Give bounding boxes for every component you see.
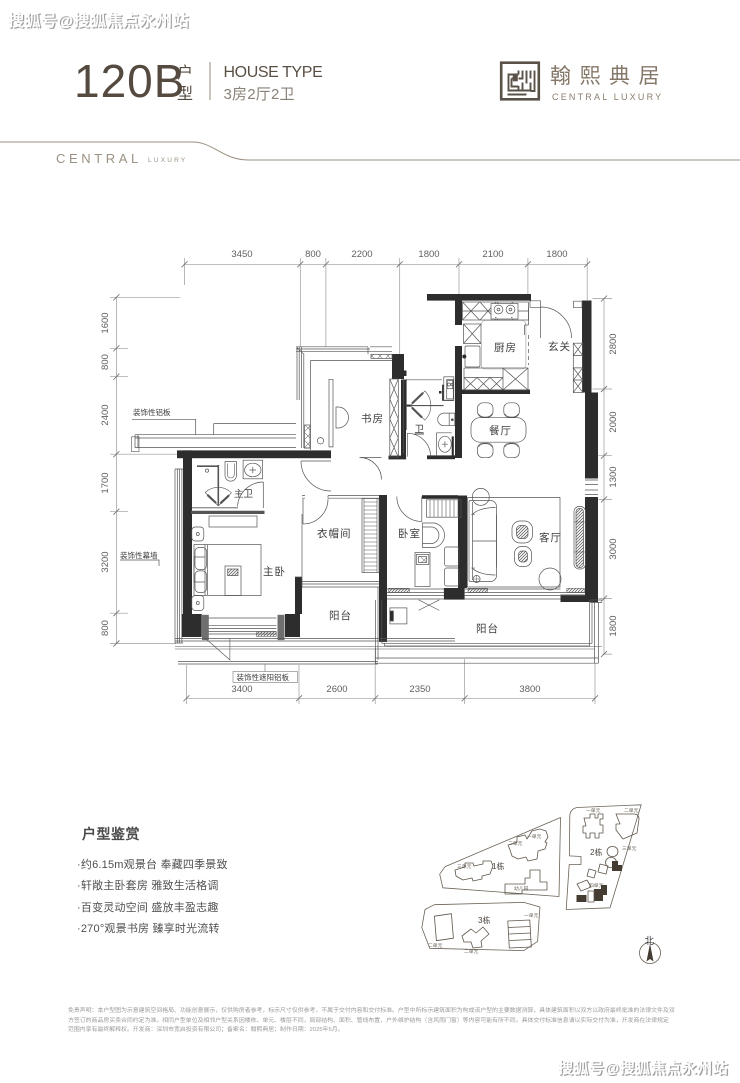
svg-text:3800: 3800 bbox=[519, 684, 540, 695]
svg-text:二单元: 二单元 bbox=[508, 840, 523, 847]
svg-text:型: 型 bbox=[177, 85, 193, 103]
svg-text:二单元: 二单元 bbox=[464, 948, 479, 955]
svg-text:装饰性幕墙: 装饰性幕墙 bbox=[120, 550, 158, 560]
svg-text:2400: 2400 bbox=[100, 404, 111, 425]
svg-text:幼儿园: 幼儿园 bbox=[514, 885, 529, 892]
svg-text:二单元: 二单元 bbox=[624, 807, 639, 814]
svg-text:玄关: 玄关 bbox=[548, 340, 571, 353]
svg-text:CENTRAL LUXURY: CENTRAL LUXURY bbox=[552, 92, 663, 102]
svg-text:1800: 1800 bbox=[418, 249, 439, 260]
svg-text:一单元: 一单元 bbox=[524, 912, 539, 919]
svg-text:2600: 2600 bbox=[326, 684, 347, 695]
svg-text:2800: 2800 bbox=[608, 333, 619, 354]
svg-text:厨房: 厨房 bbox=[494, 341, 517, 354]
svg-text:3400: 3400 bbox=[231, 684, 252, 695]
svg-text:客厅: 客厅 bbox=[539, 531, 562, 544]
svg-text:衣帽间: 衣帽间 bbox=[317, 527, 352, 540]
svg-text:1600: 1600 bbox=[100, 312, 111, 333]
svg-text:户: 户 bbox=[177, 64, 193, 82]
svg-text:阳台: 阳台 bbox=[476, 622, 499, 635]
svg-text:CENTRAL: CENTRAL bbox=[56, 151, 142, 166]
svg-text:1700: 1700 bbox=[100, 472, 111, 493]
svg-text:主卫: 主卫 bbox=[234, 488, 254, 500]
svg-text:3450: 3450 bbox=[231, 249, 252, 260]
svg-text:1800: 1800 bbox=[608, 615, 619, 636]
svg-text:1栋: 1栋 bbox=[492, 861, 504, 871]
svg-text:2栋: 2栋 bbox=[590, 847, 602, 857]
svg-text:3房2厅2卫: 3房2厅2卫 bbox=[224, 86, 295, 103]
svg-text:主卧: 主卧 bbox=[263, 565, 286, 578]
svg-text:2000: 2000 bbox=[608, 411, 619, 432]
svg-text:一单元: 一单元 bbox=[527, 833, 542, 840]
svg-text:卫: 卫 bbox=[415, 425, 425, 436]
svg-text:HOUSE TYPE: HOUSE TYPE bbox=[224, 64, 323, 81]
svg-text:800: 800 bbox=[100, 620, 111, 636]
svg-text:翰熙典居: 翰熙典居 bbox=[550, 65, 668, 88]
svg-text:一单元: 一单元 bbox=[586, 807, 601, 814]
svg-text:3000: 3000 bbox=[608, 538, 619, 559]
svg-text:2200: 2200 bbox=[351, 249, 372, 260]
svg-text:2100: 2100 bbox=[482, 249, 503, 260]
svg-text:1800: 1800 bbox=[546, 249, 567, 260]
svg-text:800: 800 bbox=[305, 249, 321, 260]
svg-text:二单元: 二单元 bbox=[428, 942, 443, 949]
svg-text:餐厅: 餐厅 bbox=[489, 424, 512, 437]
svg-text:1300: 1300 bbox=[608, 466, 619, 487]
svg-text:120B: 120B bbox=[74, 55, 185, 107]
svg-text:2350: 2350 bbox=[409, 684, 430, 695]
svg-text:3200: 3200 bbox=[100, 551, 111, 572]
svg-text:装饰性遮阳铝板: 装饰性遮阳铝板 bbox=[237, 672, 290, 682]
svg-text:装饰性铝板: 装饰性铝板 bbox=[133, 407, 171, 417]
svg-text:三单元: 三单元 bbox=[457, 863, 472, 870]
svg-text:三单元: 三单元 bbox=[622, 845, 637, 852]
svg-text:书房: 书房 bbox=[361, 412, 384, 425]
svg-text:阳台: 阳台 bbox=[329, 609, 352, 622]
svg-text:北: 北 bbox=[645, 936, 655, 947]
svg-text:800: 800 bbox=[100, 354, 111, 370]
svg-text:卧室: 卧室 bbox=[398, 527, 421, 540]
svg-text:LUXURY: LUXURY bbox=[148, 157, 187, 164]
svg-text:3栋: 3栋 bbox=[478, 915, 490, 925]
